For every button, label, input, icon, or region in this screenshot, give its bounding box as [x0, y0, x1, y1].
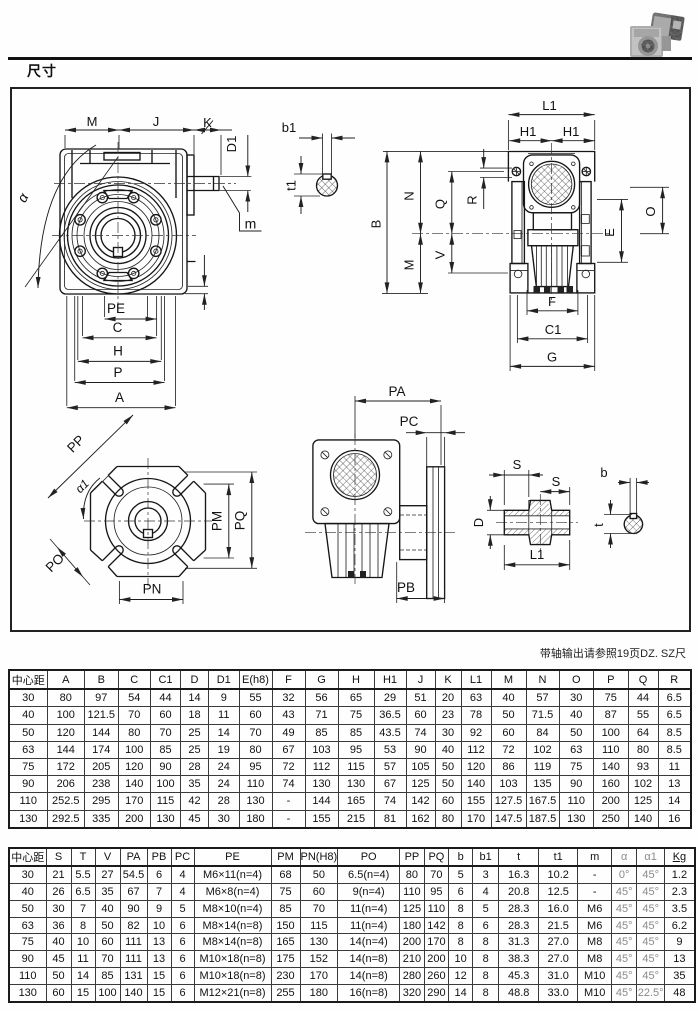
svg-text:m: m: [245, 216, 257, 232]
svg-text:O: O: [643, 206, 658, 216]
svg-text:S: S: [552, 474, 561, 489]
svg-text:T: T: [184, 257, 199, 265]
svg-text:H: H: [113, 344, 123, 359]
svg-text:PM: PM: [210, 511, 225, 531]
svg-text:P: P: [113, 365, 122, 380]
svg-text:R: R: [465, 195, 480, 204]
svg-text:D: D: [471, 518, 486, 527]
svg-text:b1: b1: [282, 120, 296, 135]
svg-text:F: F: [548, 294, 556, 309]
svg-text:PC: PC: [400, 414, 419, 429]
svg-text:V: V: [433, 250, 448, 259]
svg-text:PQ: PQ: [233, 511, 248, 531]
svg-text:PB: PB: [397, 580, 415, 595]
svg-text:t: t: [591, 523, 606, 527]
svg-text:L1: L1: [530, 547, 544, 562]
svg-text:A: A: [115, 390, 124, 405]
svg-text:M: M: [402, 260, 417, 271]
svg-text:C: C: [113, 320, 123, 335]
svg-text:b: b: [600, 465, 607, 480]
svg-text:PP: PP: [64, 432, 87, 455]
svg-text:PE: PE: [107, 301, 125, 316]
svg-text:H1: H1: [520, 124, 537, 139]
svg-text:J: J: [153, 114, 160, 129]
svg-text:L1: L1: [542, 98, 556, 113]
svg-text:PN: PN: [143, 582, 162, 597]
svg-text:H1: H1: [563, 124, 580, 139]
svg-text:C1: C1: [545, 322, 562, 337]
svg-text:D1: D1: [224, 136, 239, 153]
svg-text:M: M: [87, 114, 98, 129]
svg-text:E: E: [602, 228, 617, 237]
svg-text:α: α: [14, 189, 32, 204]
svg-text:N: N: [402, 191, 417, 200]
svg-text:B: B: [369, 220, 384, 229]
svg-text:PA: PA: [388, 384, 405, 399]
svg-text:t1: t1: [284, 180, 299, 191]
svg-text:S: S: [513, 457, 522, 472]
svg-text:G: G: [547, 350, 557, 365]
svg-text:Q: Q: [433, 199, 448, 209]
svg-text:α1: α1: [72, 476, 91, 495]
